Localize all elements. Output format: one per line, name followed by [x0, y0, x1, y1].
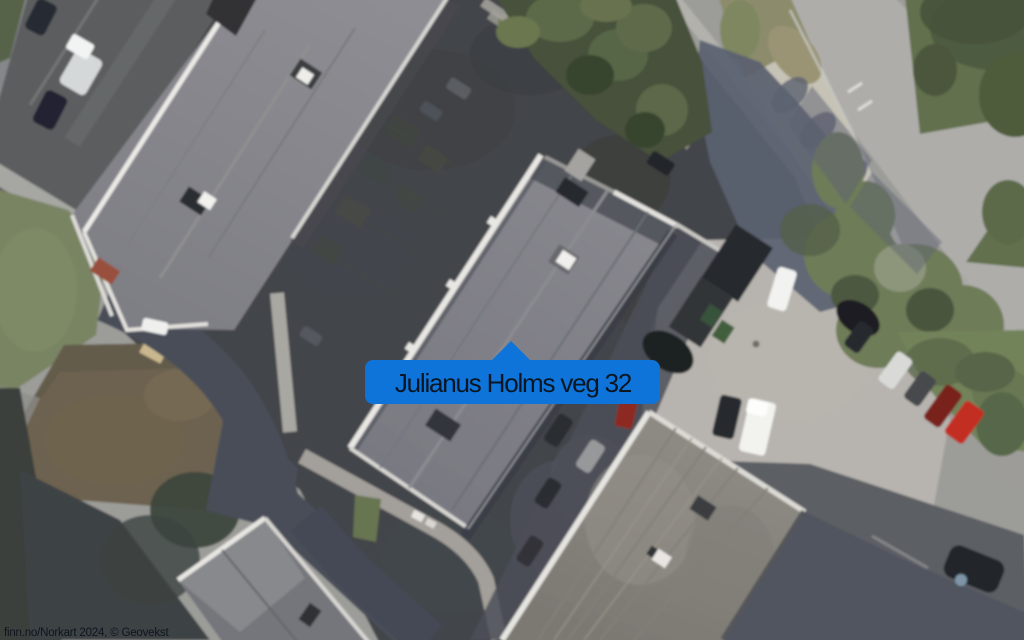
- svg-text:Julianus Holms veg 32: Julianus Holms veg 32: [395, 368, 632, 398]
- svg-text:finn.no/Norkart 2024, © Geovek: finn.no/Norkart 2024, © Geovekst: [4, 627, 169, 639]
